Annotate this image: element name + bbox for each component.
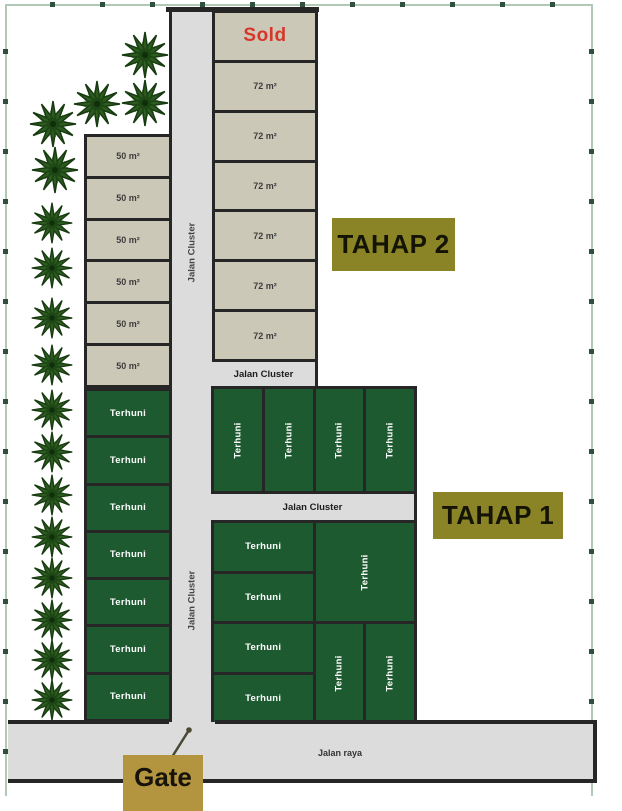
occupied-lot: Terhuni [87,533,169,577]
tree-icon [30,296,74,340]
occupied-lot: Terhuni [214,389,262,491]
occupied-lot: Terhuni [265,389,313,491]
lot-72m: 72 m² [215,262,315,309]
occupied-lot: Terhuni [366,624,414,722]
tree-icon [30,515,74,559]
tree-icon [30,556,74,600]
lot-block-center-72m: Sold 72 m² 72 m² 72 m² 72 m² 72 m² 72 m² [212,10,318,362]
occupied-lot: Terhuni [316,624,364,722]
occupied-lot-large: Terhuni [316,523,415,621]
lot-50m: 50 m² [87,346,169,385]
lot-50m: 50 m² [87,304,169,343]
lot-50m: 50 m² [87,221,169,260]
tree-icon [30,638,74,682]
cluster-road-label: Jalan Cluster [234,369,294,380]
tree-icon [30,246,74,290]
sold-lot: Sold [215,13,315,60]
occupied-lot: Terhuni [87,627,169,671]
occupied-lot: Terhuni [87,580,169,624]
lot-block-mid-occupied: Terhuni Terhuni Terhuni Terhuni [211,386,417,494]
lot-72m: 72 m² [215,63,315,110]
tree-icon [30,388,74,432]
tree-icon [120,78,170,128]
occupied-lot: Terhuni [87,675,169,719]
tree-icon [30,201,74,245]
cluster-road-strip-lower: Jalan Cluster [211,494,417,520]
occupied-lot: Terhuni [366,389,414,491]
phase-2-label: TAHAP 2 [332,218,455,271]
occupied-lot: Terhuni [87,391,169,435]
gate-label: Gate [123,755,203,811]
lot-72m: 72 m² [215,212,315,259]
cluster-road-label-vertical-lower: Jalan Cluster [187,541,198,661]
lot-50m: 50 m² [87,179,169,218]
occupied-lot: Terhuni [214,675,313,723]
occupied-lot: Terhuni [87,486,169,530]
occupied-lot: Terhuni [214,523,313,571]
lot-50m: 50 m² [87,137,169,176]
tree-icon [72,79,122,129]
main-road-bottom-wall [8,779,597,783]
tree-icon [30,430,74,474]
sold-label: Sold [243,25,286,47]
lot-block-left-occupied: Terhuni Terhuni Terhuni Terhuni Terhuni … [84,388,172,722]
tree-icon [28,99,78,149]
occupied-lot: Terhuni [87,438,169,482]
lot-72m: 72 m² [215,312,315,359]
cluster-road-label-vertical-upper: Jalan Cluster [187,193,198,313]
main-road-top-wall-left [8,720,169,724]
tree-icon [30,343,74,387]
phase-1-label: TAHAP 1 [433,492,563,539]
main-road-right-wall [593,720,597,783]
lot-50m: 50 m² [87,262,169,301]
occupied-lot: Terhuni [214,624,313,672]
cluster-road-strip-upper: Jalan Cluster [212,362,318,386]
lot-72m: 72 m² [215,163,315,210]
occupied-lot: Terhuni [316,389,364,491]
cluster-road-label: Jalan Cluster [283,502,343,513]
tree-icon [120,30,170,80]
tree-icon [30,145,80,195]
main-road-top-wall-right [215,720,597,724]
lot-block-left-50m: 50 m² 50 m² 50 m² 50 m² 50 m² 50 m² [84,134,172,388]
lot-block-lower-occupied: Terhuni Terhuni Terhuni Terhuni Terhuni … [211,520,417,725]
lot-72m: 72 m² [215,113,315,160]
survey-frame-ticks-left [3,4,8,790]
tree-icon [30,473,74,517]
tree-icon [30,598,74,642]
siteplan-canvas: { "phase_labels": { "tahap2": "TAHAP 2",… [0,0,622,804]
tree-icon [30,678,74,722]
main-road-label: Jalan raya [300,748,380,758]
occupied-lot: Terhuni [214,574,313,622]
survey-frame-ticks-right [589,4,594,718]
